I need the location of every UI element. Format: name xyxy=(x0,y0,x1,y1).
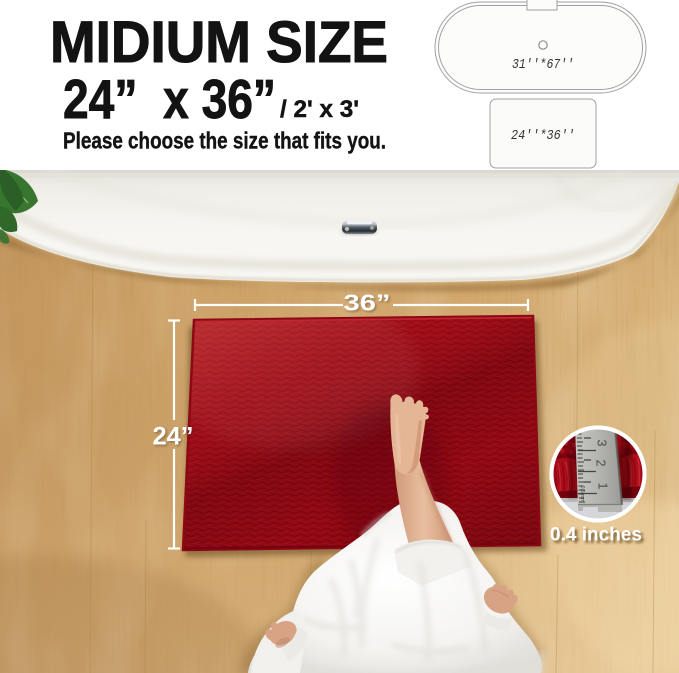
svg-text:0.5 mm: 0.5 mm xyxy=(579,486,585,503)
svg-text:24''*36'': 24''*36'' xyxy=(511,129,575,144)
svg-text:1: 1 xyxy=(596,483,610,490)
svg-text:MIDIUM SIZE: MIDIUM SIZE xyxy=(50,10,388,75)
svg-text:36”: 36” xyxy=(344,290,391,316)
svg-text:0.4 inches: 0.4 inches xyxy=(550,525,642,546)
svg-text:24” x 36”: 24” x 36” xyxy=(63,68,276,130)
svg-text:3: 3 xyxy=(595,440,609,447)
svg-text:31''*67'': 31''*67'' xyxy=(512,58,574,73)
svg-text:/ 2' x 3': / 2' x 3' xyxy=(280,96,359,123)
svg-text:24”: 24” xyxy=(153,423,194,451)
svg-text:Please choose the size that fi: Please choose the size that fits you. xyxy=(63,128,386,154)
svg-text:2: 2 xyxy=(594,460,608,467)
